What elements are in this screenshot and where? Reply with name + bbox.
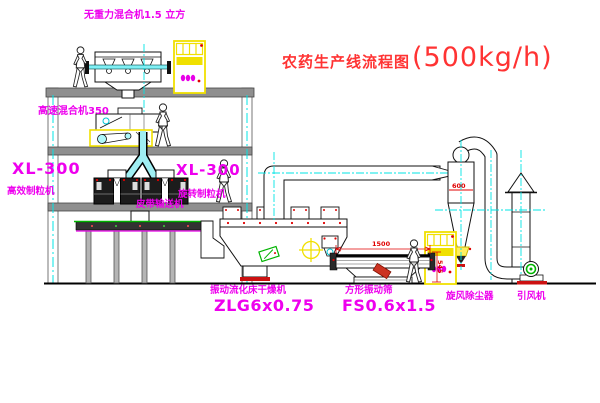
control-cabinet-top bbox=[174, 41, 205, 93]
dim-sieve-height: 545 bbox=[436, 260, 444, 274]
title-text: 农药生产线流程图 bbox=[282, 51, 410, 72]
label-sieve-name: 方形振动筛 bbox=[345, 286, 393, 296]
label-granulator-left-model: XL-300 bbox=[12, 161, 81, 177]
label-granulator-right-model: XL-300 bbox=[176, 163, 241, 178]
pesticide-line-flow-diagram: 农药生产线流程图 (500kg/h) 无重力混合机1.5 立方 高速混合机350… bbox=[0, 0, 600, 403]
label-gravity-mixer: 无重力混合机1.5 立方 bbox=[84, 11, 185, 21]
label-belt-conveyor: 皮带输送机 bbox=[136, 200, 184, 210]
label-dryer-model: ZLG6x0.75 bbox=[214, 298, 314, 314]
dim-sieve-length: 1500 bbox=[372, 240, 390, 248]
mixer-shaft bbox=[88, 65, 168, 69]
label-high-speed-mixer: 高速混合机350 bbox=[38, 107, 109, 117]
diagram-title: 农药生产线流程图 (500kg/h) bbox=[282, 42, 553, 73]
label-sieve-model: FS0.6x1.5 bbox=[342, 298, 436, 314]
label-cyclone: 旋风除尘器 bbox=[446, 292, 494, 302]
label-dryer-name: 振动流化床干燥机 bbox=[210, 286, 286, 296]
title-capacity: (500kg/h) bbox=[412, 42, 553, 73]
belt-conveyor bbox=[74, 222, 206, 284]
dim-cyclone-width: 600 bbox=[452, 182, 466, 190]
dryer-exhaust-duct bbox=[258, 152, 455, 222]
label-granulator-right-name: 旋转制粒机 bbox=[178, 190, 226, 200]
label-fan: 引风机 bbox=[517, 292, 546, 302]
label-granulator-left-name: 高效制粒机 bbox=[7, 187, 55, 197]
